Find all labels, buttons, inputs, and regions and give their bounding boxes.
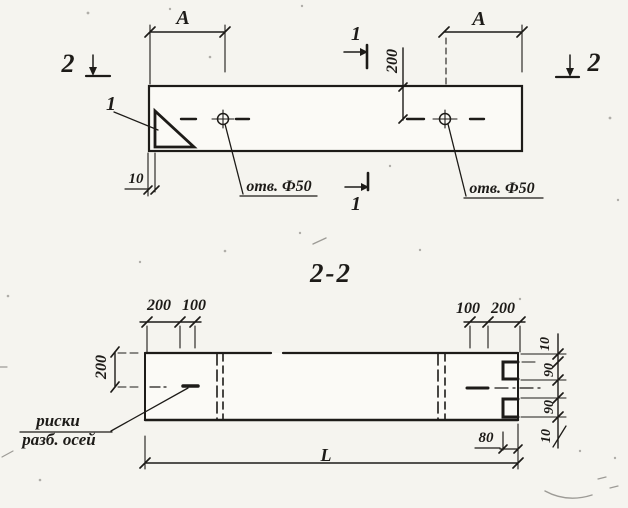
dim-200-hole-label: 200 — [385, 41, 403, 81]
section-mark-1-top — [344, 45, 368, 68]
dim-200-tr-label: 200 — [486, 301, 520, 317]
dim-length-label: L — [316, 446, 336, 464]
dim-80-label: 80 — [473, 431, 499, 446]
dim-200-height — [111, 347, 142, 392]
dim-top-left — [140, 317, 201, 352]
detail-callout-label: 1 — [100, 94, 122, 114]
dim-200-tl-label: 200 — [142, 298, 176, 314]
beam-plan-outline — [149, 86, 522, 151]
dim-right-90-upper-label: 90 — [543, 355, 559, 385]
section-label-2-right: 2 — [581, 50, 607, 76]
dim-200-height-label: 200 — [94, 347, 112, 387]
beam-section-fill — [145, 353, 518, 420]
section-label-1-top: 1 — [345, 24, 367, 44]
dim-a-right-label: A — [466, 9, 492, 29]
drawing-canvas: A A 2 2 1 1 1 200 10 отв. Ф50 отв. Ф50 2… — [0, 0, 628, 508]
section-title: 2-2 — [298, 260, 364, 287]
dim-100-tl-label: 100 — [179, 298, 209, 314]
section-mark-1-bottom — [345, 173, 369, 191]
dim-100-tr-label: 100 — [453, 301, 483, 317]
section-mark-2-right — [556, 55, 579, 77]
section-label-2-left: 2 — [55, 51, 81, 77]
hole-label-right: отв. Ф50 — [466, 181, 538, 197]
plan-view-group — [86, 25, 579, 198]
hole-label-left: отв. Ф50 — [243, 179, 315, 195]
dim-a-left-label: A — [170, 8, 196, 28]
dim-a-left — [145, 25, 230, 84]
section-mark-2-left — [86, 55, 110, 76]
section-label-1-bottom: 1 — [345, 194, 367, 214]
scan-artifacts — [0, 5, 619, 498]
dim-right-10-bottom-label: 10 — [540, 421, 556, 451]
dim-10-label: 10 — [124, 172, 148, 187]
dim-top-right — [464, 317, 525, 352]
dim-a-right — [439, 25, 527, 84]
axis-note-line2: разб. осей — [14, 431, 104, 448]
axis-note-line1: риски — [28, 412, 88, 429]
dim-right-90-lower-label: 90 — [543, 392, 559, 422]
